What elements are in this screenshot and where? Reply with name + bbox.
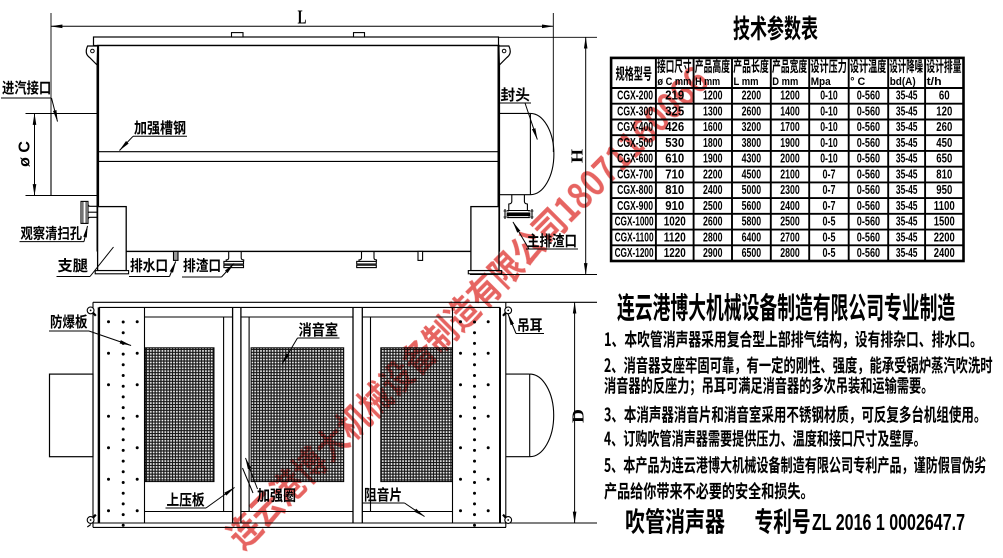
svg-text:2200: 2200 <box>934 229 955 244</box>
svg-text:0-5: 0-5 <box>823 229 836 244</box>
svg-text:1100: 1100 <box>934 198 955 213</box>
svg-text:0-5: 0-5 <box>823 214 836 229</box>
svg-text:0-560: 0-560 <box>857 103 880 118</box>
svg-text:1200: 1200 <box>703 88 723 103</box>
svg-text:1900: 1900 <box>780 135 800 150</box>
svg-text:0-10: 0-10 <box>820 88 838 103</box>
svg-text:ø C: ø C <box>17 141 34 167</box>
svg-text:60: 60 <box>939 88 950 103</box>
svg-text:35-45: 35-45 <box>896 229 918 244</box>
svg-text:1120: 1120 <box>664 229 686 244</box>
svg-text:ZL 2016 1 0002647.7: ZL 2016 1 0002647.7 <box>812 509 965 535</box>
svg-text:35-45: 35-45 <box>896 151 918 166</box>
svg-text:426: 426 <box>665 119 684 134</box>
svg-text:35-45: 35-45 <box>896 245 918 260</box>
svg-text:950: 950 <box>936 182 952 197</box>
svg-text:2200: 2200 <box>703 166 723 181</box>
svg-text:2700: 2700 <box>780 229 800 244</box>
svg-text:0-560: 0-560 <box>857 198 880 213</box>
svg-text:910: 910 <box>665 198 684 213</box>
svg-text:3200: 3200 <box>742 119 762 134</box>
svg-text:0-560: 0-560 <box>857 229 880 244</box>
svg-text:0-560: 0-560 <box>857 151 880 166</box>
svg-text:1220: 1220 <box>664 245 686 260</box>
svg-text:0-10: 0-10 <box>820 135 838 150</box>
svg-text:1200: 1200 <box>780 88 800 103</box>
svg-text:810: 810 <box>665 182 684 197</box>
svg-text:1020: 1020 <box>664 214 686 229</box>
svg-text:D mm: D mm <box>772 76 798 88</box>
svg-text:CGX-1000: CGX-1000 <box>615 214 654 229</box>
svg-text:35-45: 35-45 <box>896 182 918 197</box>
svg-text:0-5: 0-5 <box>823 245 836 260</box>
svg-text:6400: 6400 <box>742 229 762 244</box>
svg-text:35-45: 35-45 <box>896 103 918 118</box>
svg-text:2500: 2500 <box>780 214 800 229</box>
svg-text:0-10: 0-10 <box>820 119 838 134</box>
svg-text:2400: 2400 <box>934 245 955 260</box>
svg-text:6500: 6500 <box>742 245 762 260</box>
svg-text:CGX-200: CGX-200 <box>617 88 653 103</box>
svg-text:2900: 2900 <box>703 245 723 260</box>
svg-text:1600: 1600 <box>703 119 723 134</box>
svg-text:2500: 2500 <box>703 198 723 213</box>
svg-text:0-7: 0-7 <box>823 166 836 181</box>
svg-text:710: 710 <box>665 166 684 181</box>
svg-text:35-45: 35-45 <box>896 135 918 150</box>
svg-text:1900: 1900 <box>703 151 723 166</box>
svg-text:2400: 2400 <box>703 182 723 197</box>
svg-text:0-7: 0-7 <box>823 182 836 197</box>
svg-text:CGX-900: CGX-900 <box>617 198 653 213</box>
svg-text:810: 810 <box>936 166 952 181</box>
svg-text:0-560: 0-560 <box>857 182 880 197</box>
svg-text:2300: 2300 <box>780 182 800 197</box>
svg-text:1500: 1500 <box>934 214 955 229</box>
svg-text:° C: ° C <box>850 76 865 88</box>
svg-text:4500: 4500 <box>742 166 762 181</box>
svg-text:2800: 2800 <box>780 245 800 260</box>
svg-text:260: 260 <box>936 119 952 134</box>
svg-text:35-45: 35-45 <box>896 88 918 103</box>
svg-text:0-7: 0-7 <box>823 198 836 213</box>
svg-text:0-10: 0-10 <box>820 103 838 118</box>
svg-text:35-45: 35-45 <box>896 166 918 181</box>
svg-text:2200: 2200 <box>742 88 762 103</box>
svg-text:L mm: L mm <box>734 76 759 88</box>
svg-text:650: 650 <box>936 151 952 166</box>
svg-text:0-560: 0-560 <box>857 166 880 181</box>
svg-text:3800: 3800 <box>742 135 762 150</box>
svg-text:D: D <box>569 409 588 423</box>
svg-text:2600: 2600 <box>703 214 723 229</box>
svg-text:2800: 2800 <box>703 229 723 244</box>
svg-text:5800: 5800 <box>742 214 762 229</box>
svg-text:CGX-800: CGX-800 <box>617 182 653 197</box>
svg-text:0-560: 0-560 <box>857 245 880 260</box>
svg-text:0-10: 0-10 <box>820 151 838 166</box>
svg-text:35-45: 35-45 <box>896 198 918 213</box>
svg-text:2600: 2600 <box>742 103 762 118</box>
svg-text:0-560: 0-560 <box>857 214 880 229</box>
svg-text:1400: 1400 <box>780 103 800 118</box>
svg-text:5600: 5600 <box>742 198 762 213</box>
svg-text:2100: 2100 <box>780 166 800 181</box>
svg-text:Mpa: Mpa <box>811 76 832 88</box>
svg-text:4300: 4300 <box>742 151 762 166</box>
svg-text:5000: 5000 <box>742 182 762 197</box>
svg-text:450: 450 <box>936 135 952 150</box>
svg-text:H: H <box>568 149 587 163</box>
svg-text:2000: 2000 <box>780 151 800 166</box>
svg-text:0-560: 0-560 <box>857 135 880 150</box>
svg-text:35-45: 35-45 <box>896 214 918 229</box>
svg-text:1700: 1700 <box>780 119 800 134</box>
svg-text:120: 120 <box>936 103 952 118</box>
svg-text:L: L <box>298 7 307 29</box>
svg-text:1300: 1300 <box>703 103 723 118</box>
svg-text:CGX-1200: CGX-1200 <box>615 245 654 260</box>
svg-text:0-560: 0-560 <box>857 88 880 103</box>
svg-text:bd(A): bd(A) <box>890 76 916 88</box>
svg-text:610: 610 <box>665 151 684 166</box>
svg-text:1800: 1800 <box>703 135 723 150</box>
svg-text:t/h: t/h <box>927 76 942 88</box>
svg-text:35-45: 35-45 <box>896 119 918 134</box>
svg-text:0-560: 0-560 <box>857 119 880 134</box>
svg-text:2400: 2400 <box>780 198 800 213</box>
svg-text:530: 530 <box>665 135 684 150</box>
svg-text:CGX-1100: CGX-1100 <box>615 229 654 244</box>
